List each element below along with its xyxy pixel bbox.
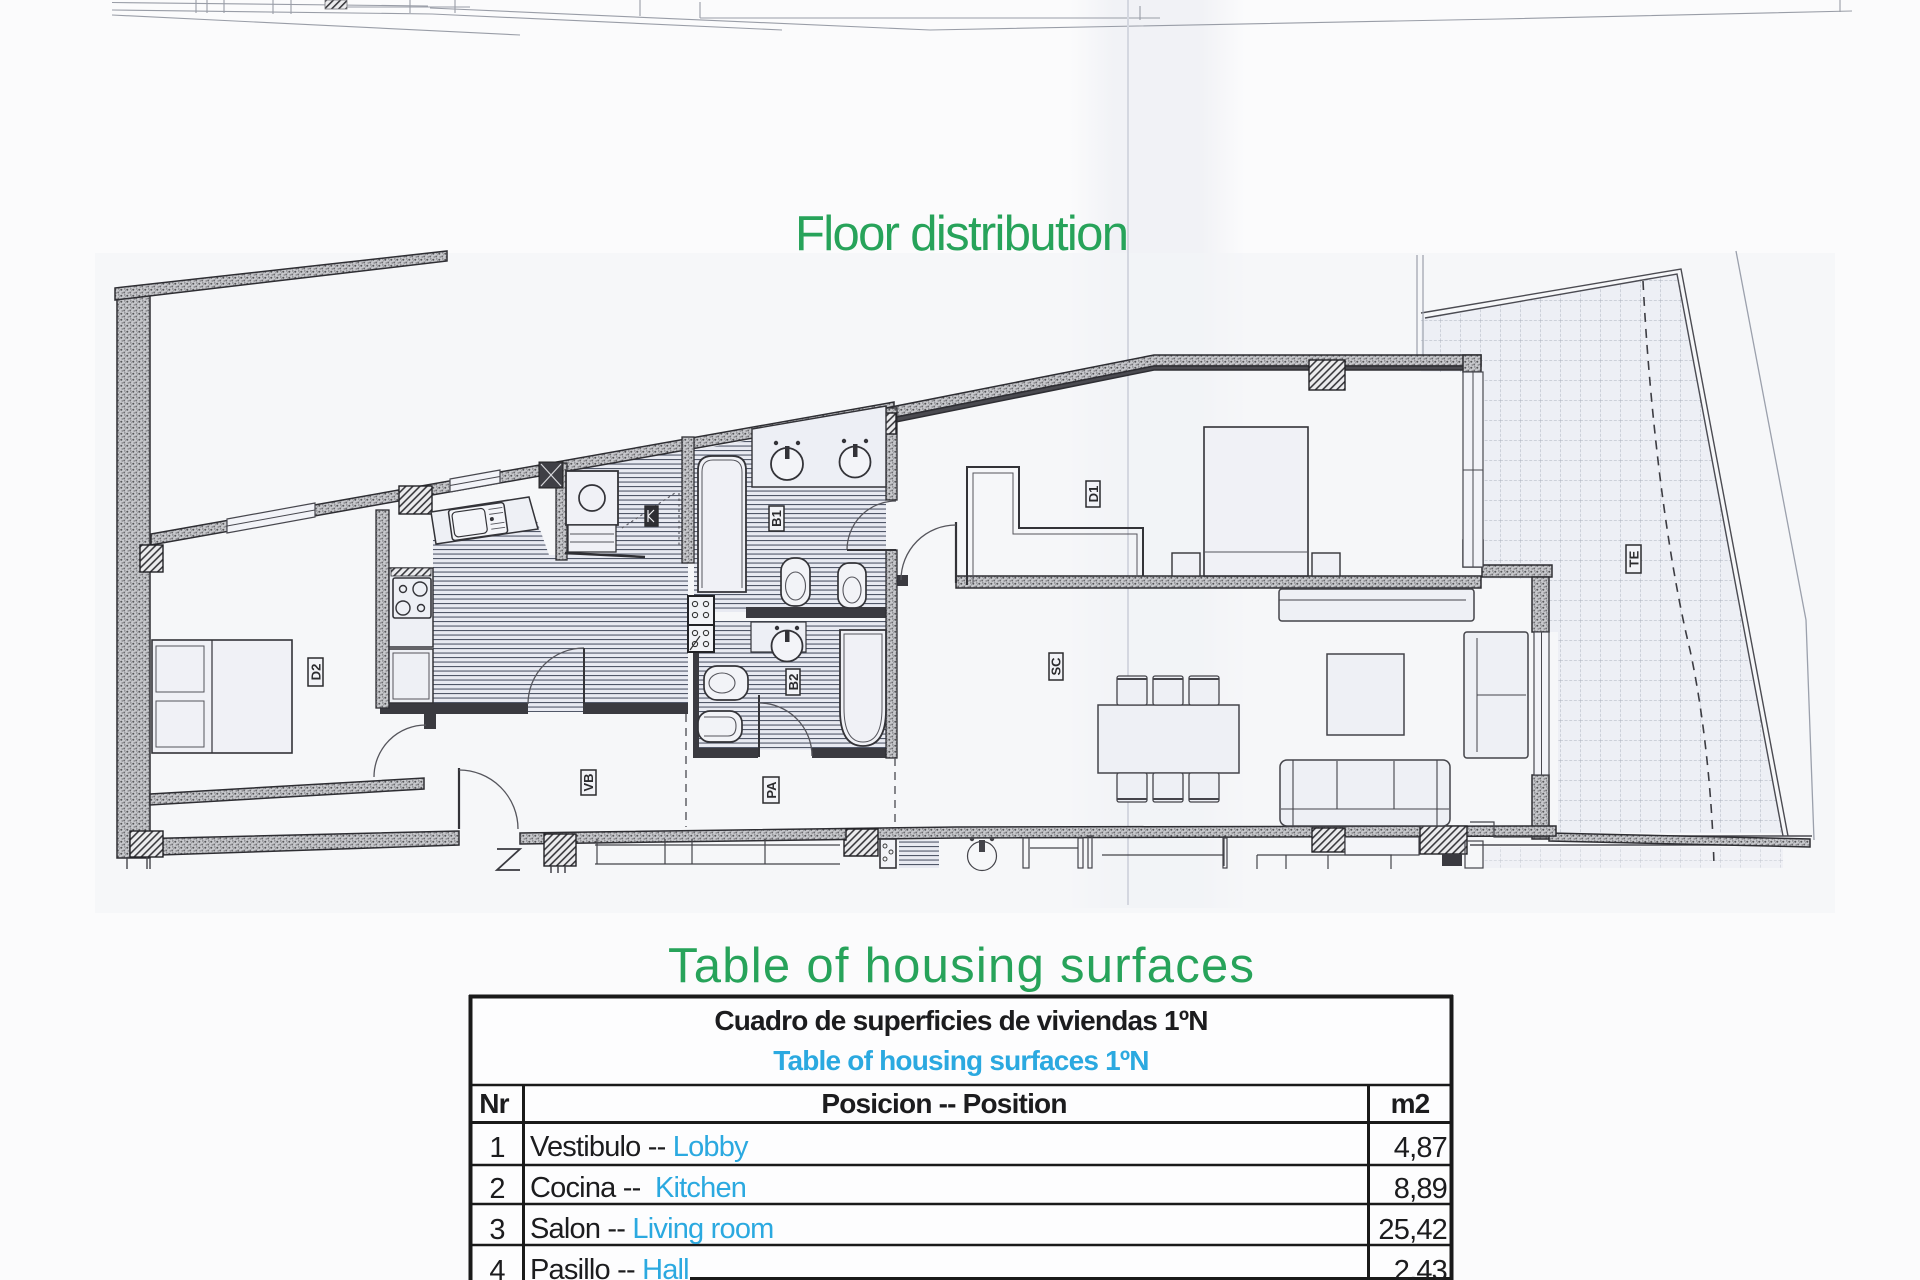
svg-text:Vestibulo -- Lobby: Vestibulo -- Lobby <box>530 1131 749 1163</box>
svg-text:D1: D1 <box>1086 486 1101 503</box>
svg-text:25,42: 25,42 <box>1378 1214 1447 1246</box>
svg-text:Salon -- Living room: Salon -- Living room <box>530 1213 774 1245</box>
svg-text:SC: SC <box>1049 657 1064 676</box>
svg-text:4,87: 4,87 <box>1394 1132 1447 1164</box>
svg-text:8,89: 8,89 <box>1394 1173 1447 1205</box>
svg-text:m2: m2 <box>1391 1088 1430 1119</box>
svg-text:Posicion -- Position: Posicion -- Position <box>821 1088 1066 1119</box>
svg-text:2: 2 <box>489 1173 504 1205</box>
svg-text:VB: VB <box>581 773 596 791</box>
svg-text:TE: TE <box>1627 550 1642 567</box>
svg-text:Nr: Nr <box>479 1088 509 1119</box>
svg-text:4: 4 <box>489 1255 505 1280</box>
svg-text:Pasillo -- Hall: Pasillo -- Hall <box>530 1254 689 1280</box>
svg-text:D2: D2 <box>309 664 324 681</box>
svg-text:PA: PA <box>764 781 779 799</box>
svg-text:Table of housing surfaces 1ºN: Table of housing surfaces 1ºN <box>773 1045 1148 1076</box>
svg-text:B2: B2 <box>786 674 801 691</box>
svg-text:Cocina -- Kitchen: Cocina -- Kitchen <box>530 1172 746 1204</box>
svg-text:Cuadro de superficies de vivie: Cuadro de superficies de viviendas 1ºN <box>714 1005 1207 1036</box>
svg-text:Table of housing surfaces: Table of housing surfaces <box>668 939 1254 993</box>
svg-text:Floor distribution: Floor distribution <box>795 207 1129 261</box>
svg-text:1: 1 <box>489 1132 504 1164</box>
svg-text:2,43: 2,43 <box>1394 1255 1447 1280</box>
svg-text:3: 3 <box>489 1214 504 1246</box>
svg-text:B1: B1 <box>769 510 784 527</box>
